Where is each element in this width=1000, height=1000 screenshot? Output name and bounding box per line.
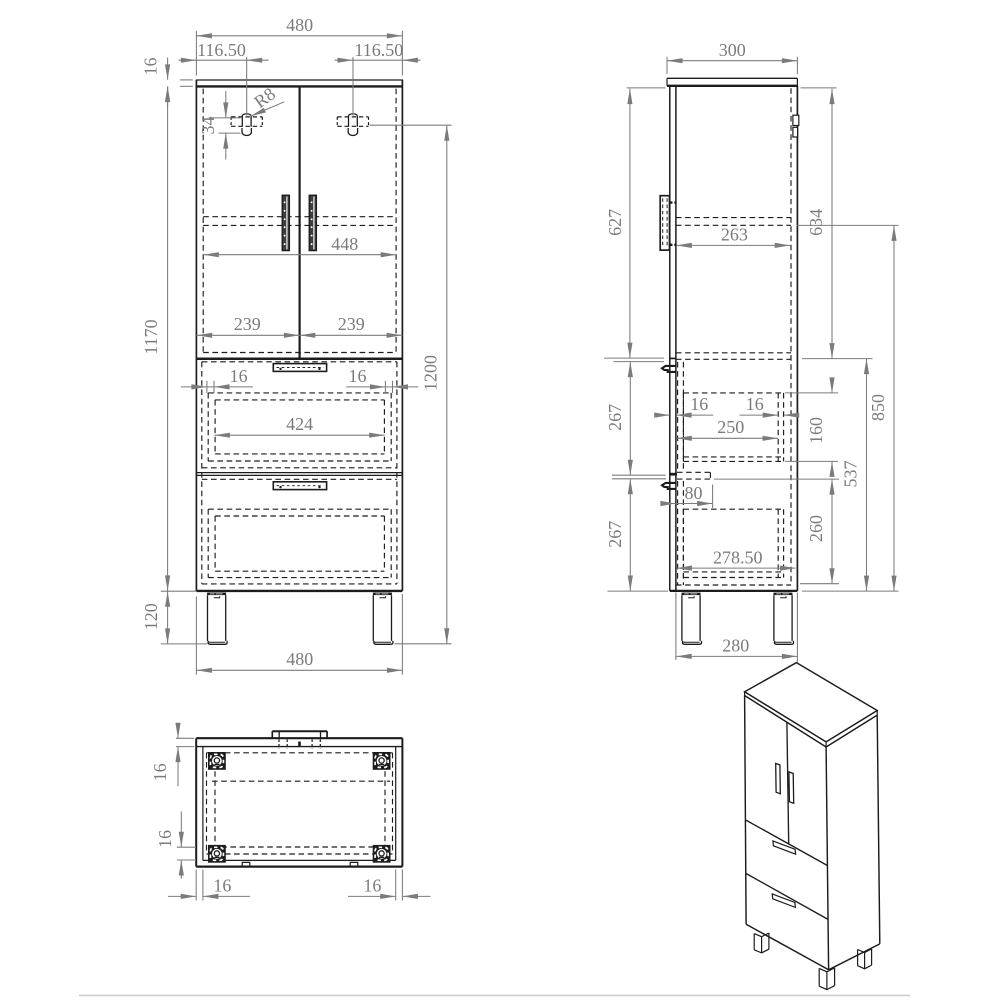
svg-text:1170: 1170 — [141, 319, 161, 354]
svg-text:263: 263 — [721, 225, 748, 245]
svg-text:300: 300 — [719, 40, 746, 60]
svg-text:627: 627 — [605, 209, 625, 236]
svg-text:16: 16 — [746, 394, 764, 414]
svg-text:16: 16 — [141, 58, 161, 76]
svg-text:80: 80 — [685, 483, 703, 503]
svg-text:634: 634 — [806, 209, 826, 236]
svg-text:267: 267 — [605, 521, 625, 548]
svg-text:120: 120 — [141, 603, 161, 630]
svg-text:239: 239 — [234, 314, 261, 334]
svg-text:34: 34 — [198, 117, 218, 135]
svg-text:116.50: 116.50 — [354, 40, 403, 60]
svg-text:537: 537 — [840, 461, 860, 488]
svg-text:16: 16 — [690, 394, 708, 414]
svg-text:424: 424 — [286, 414, 313, 434]
svg-text:480: 480 — [286, 649, 313, 669]
svg-text:16: 16 — [150, 763, 170, 781]
svg-text:267: 267 — [605, 404, 625, 431]
svg-text:480: 480 — [286, 15, 313, 35]
svg-text:278.50: 278.50 — [713, 547, 763, 567]
svg-text:260: 260 — [806, 515, 826, 542]
svg-text:280: 280 — [722, 636, 749, 656]
svg-text:250: 250 — [717, 417, 744, 437]
svg-text:16: 16 — [213, 876, 231, 896]
svg-text:16: 16 — [230, 366, 248, 386]
svg-text:448: 448 — [331, 234, 358, 254]
svg-text:1200: 1200 — [421, 355, 441, 391]
svg-text:16: 16 — [155, 830, 175, 848]
svg-text:116.50: 116.50 — [197, 40, 246, 60]
svg-text:160: 160 — [806, 417, 826, 444]
svg-text:850: 850 — [868, 394, 888, 421]
svg-text:16: 16 — [363, 876, 381, 896]
svg-text:239: 239 — [338, 314, 365, 334]
svg-text:16: 16 — [349, 366, 367, 386]
